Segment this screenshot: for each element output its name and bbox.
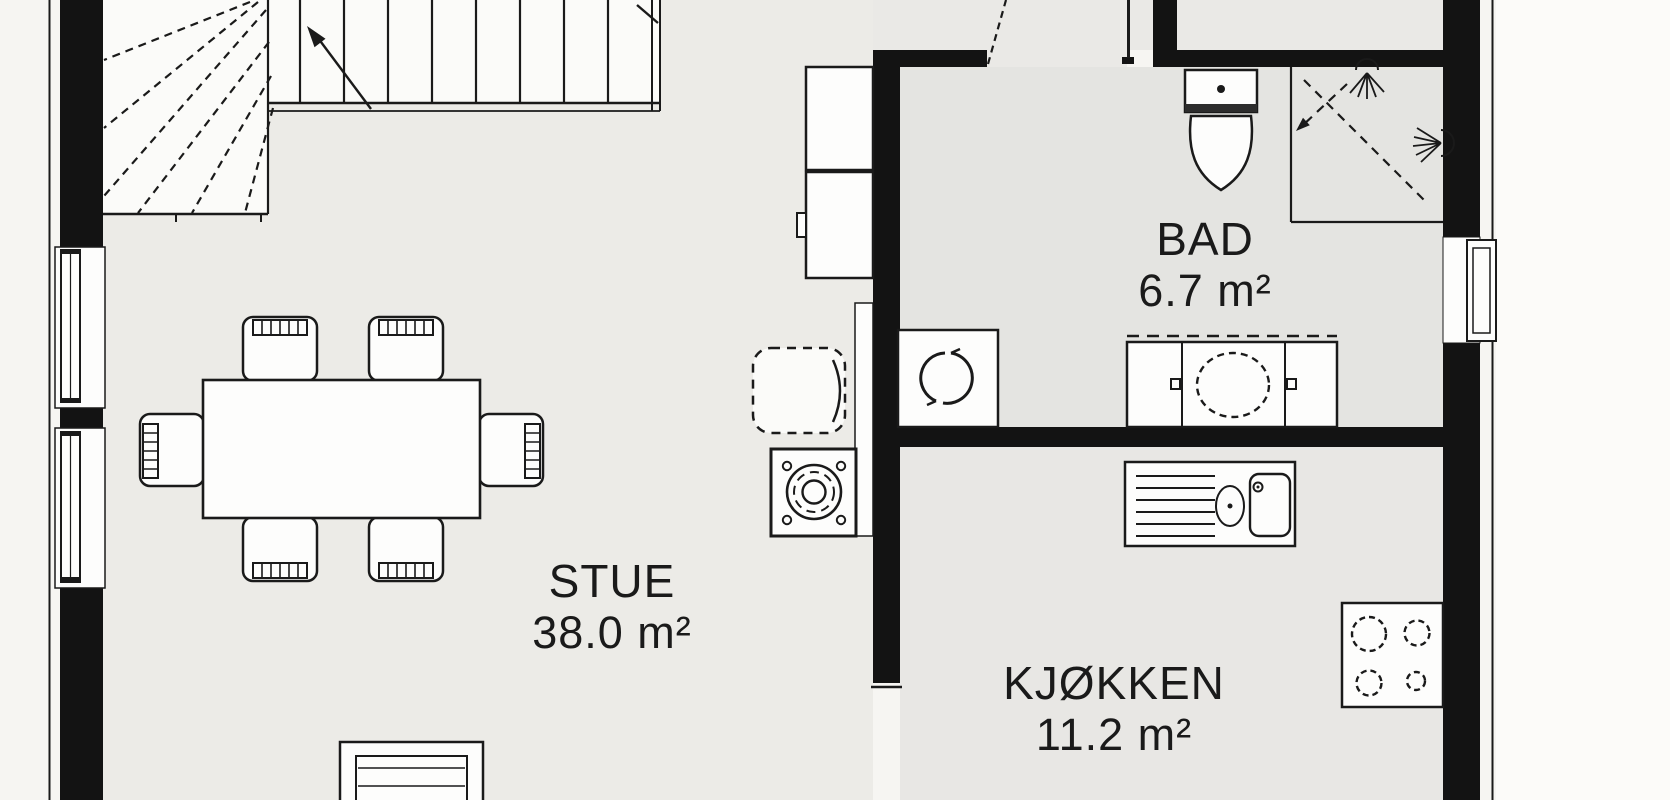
room-area: 6.7 m² <box>1045 266 1365 316</box>
chair-bottom-2 <box>369 517 443 581</box>
door-frame-foot <box>1122 57 1134 64</box>
dining-table <box>203 380 480 518</box>
wall-bad-kjokken <box>900 427 1443 447</box>
room-name: STUE <box>452 556 772 608</box>
chair-top-2 <box>369 317 443 381</box>
floor-plan: STUE 38.0 m² KJØKKEN 11.2 m² BAD 6.7 m² <box>0 0 1670 800</box>
flush-button-icon <box>1217 85 1225 93</box>
kitchen-sink <box>1125 462 1295 546</box>
chimney <box>855 303 873 536</box>
window-left-upper <box>55 247 105 408</box>
outside-right <box>1496 0 1670 800</box>
vanity-basin <box>1127 336 1337 427</box>
wall-bad-top-right <box>1153 50 1443 67</box>
room-name: BAD <box>1045 214 1365 266</box>
room-name: KJØKKEN <box>954 658 1274 710</box>
wood-stove <box>771 449 856 536</box>
room-label-kjokken: KJØKKEN 11.2 m² <box>954 658 1274 760</box>
cooktop <box>1342 603 1443 707</box>
window-left-lower <box>55 428 105 588</box>
room-area: 11.2 m² <box>954 710 1274 760</box>
window-right <box>1443 237 1496 343</box>
chair-bottom-1 <box>243 517 317 581</box>
chair-right <box>479 414 543 486</box>
room-label-stue: STUE 38.0 m² <box>452 556 772 658</box>
floor-plan-drawing <box>0 0 1670 800</box>
wall-central <box>873 50 900 683</box>
bench <box>340 742 483 800</box>
chair-top-1 <box>243 317 317 381</box>
armchair <box>753 348 845 433</box>
wall-bad-top-left <box>873 50 987 67</box>
chair-left <box>140 414 204 486</box>
room-area: 38.0 m² <box>452 608 772 658</box>
floor-door-opening <box>987 50 1127 67</box>
wall-cabinets <box>797 67 873 278</box>
room-label-bad: BAD 6.7 m² <box>1045 214 1365 316</box>
wall-stub-top <box>1153 0 1177 52</box>
washing-machine <box>898 330 998 427</box>
wall-right <box>1443 0 1480 800</box>
